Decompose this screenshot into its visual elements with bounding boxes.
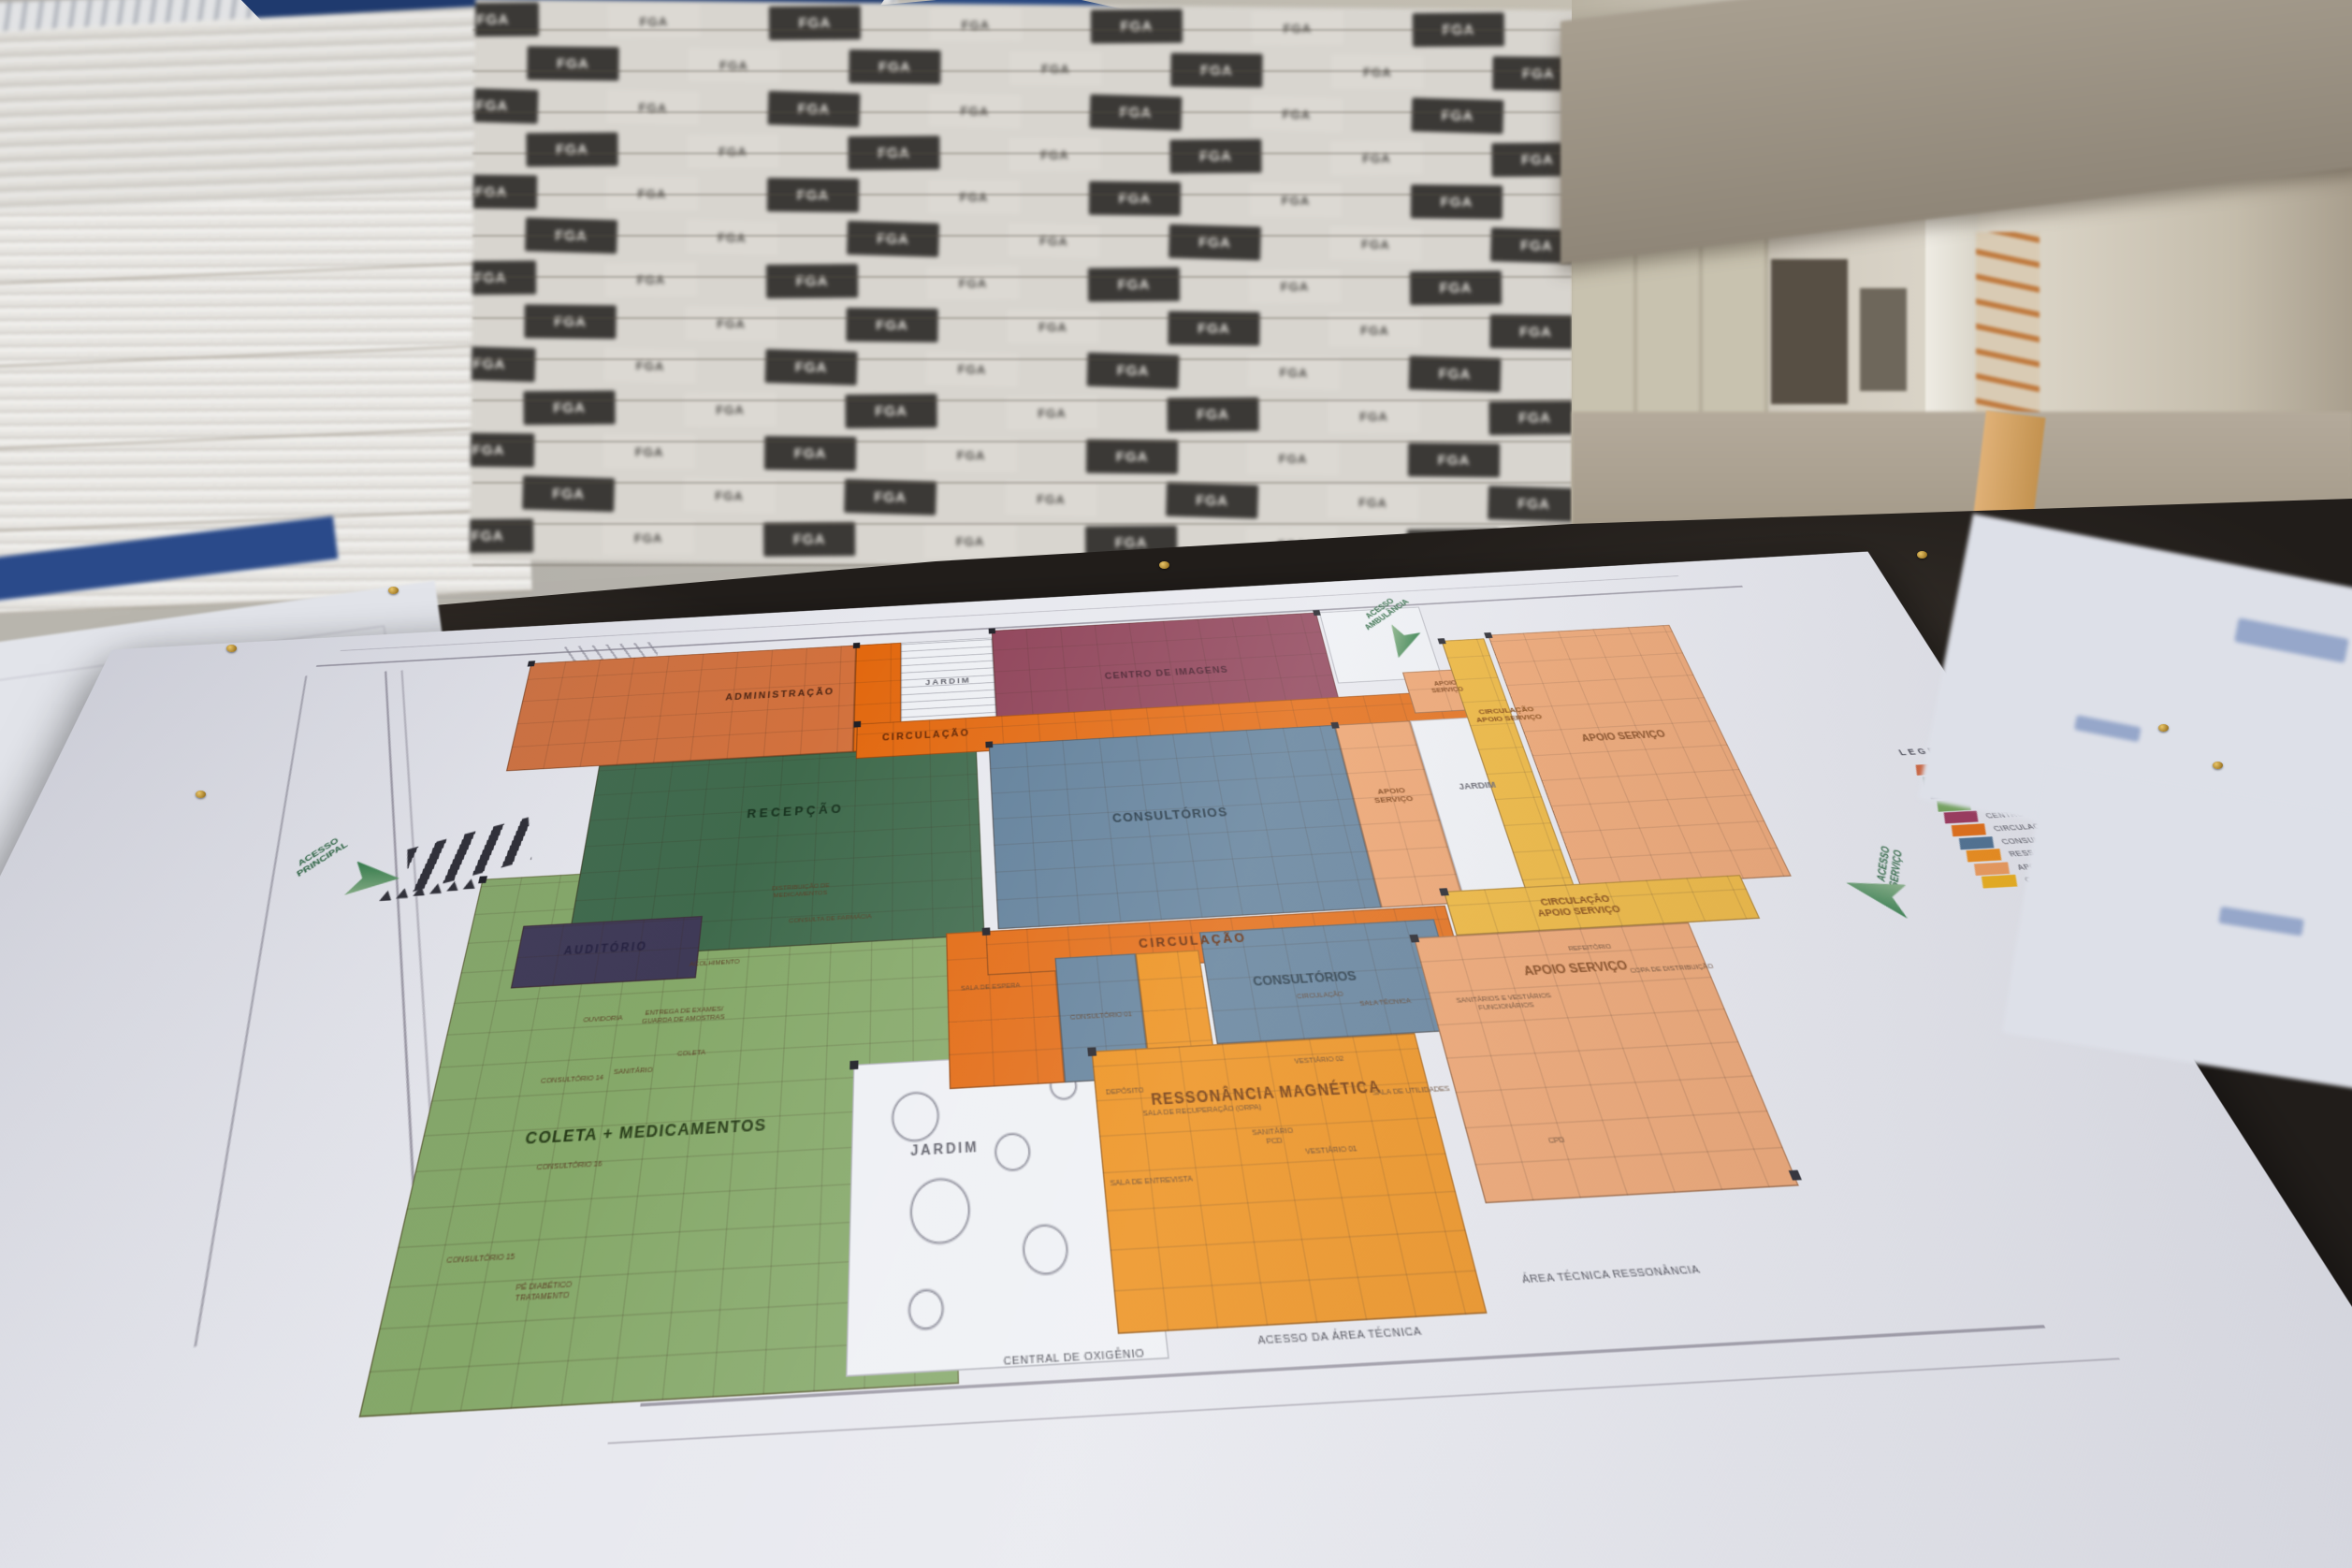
board-edge-label: FGA [1169, 139, 1261, 174]
board-edge-label: FGA [684, 392, 776, 427]
column-marker [528, 661, 536, 666]
region-administracao [506, 646, 856, 772]
board-edge-label: FGA [526, 132, 617, 167]
column-marker [853, 721, 861, 728]
board-edge-label: FGA [687, 134, 778, 168]
board-edge-label: FGA [1250, 96, 1343, 133]
acesso-principal-label: ACESSO PRINCIPAL [292, 834, 349, 879]
board-edge-label: FGA [1410, 270, 1502, 305]
acesso-servico-label: ACESSO SERVIÇO [1876, 844, 1906, 891]
board-edge-label: FGA [686, 219, 778, 255]
board-edge-label: FGA [1327, 484, 1419, 520]
board-edge-label: FGA [470, 3, 539, 37]
column-marker [1484, 632, 1492, 638]
column-marker [1087, 1047, 1096, 1056]
sketch-mark [2234, 617, 2349, 662]
sketch-mark [2218, 907, 2304, 936]
column-marker [982, 927, 991, 936]
gold-pin [2158, 724, 2169, 732]
board-edge-label: FGA [1248, 355, 1341, 391]
board-edge-label: FGA [1166, 483, 1258, 519]
board-edge-label: FGA [603, 520, 694, 555]
region-consultorios-1 [989, 725, 1382, 929]
board-edge-label: FGA [844, 479, 936, 515]
board-edge-label: FGA [1009, 138, 1100, 172]
board-edge-label: FGA [470, 88, 539, 124]
board-edge-label: FGA [769, 6, 861, 40]
board-edge-label: FGA [1328, 312, 1420, 347]
legend-swatch [1982, 875, 2017, 889]
board-edge-label: FGA [845, 394, 936, 428]
room-label: SANITÁRIO PCD [1252, 1127, 1296, 1148]
board-edge-label: FGA [608, 4, 700, 38]
column-marker [989, 628, 995, 633]
board-edge-label: FGA [930, 7, 1022, 42]
board-edge-label: FGA [470, 261, 536, 296]
zone-label: CIRCULAÇÃO APOIO SERVIÇO [1532, 893, 1622, 920]
board-edge-label: FGA [1087, 353, 1180, 389]
board-edge-label: FGA [1086, 440, 1178, 474]
pavement-triangle [446, 880, 460, 892]
board-edge-label: FGA [685, 306, 777, 341]
zone-label: JARDIM [1458, 779, 1498, 791]
gold-pin [226, 645, 237, 652]
board-edge-label: FGA [928, 180, 1020, 214]
board-edge-label: FGA [683, 477, 776, 514]
board-edge-label: FGA [1006, 396, 1097, 430]
board-edge-label: FGA [1008, 223, 1100, 259]
column-marker [1330, 722, 1339, 729]
site-label: ACESSO DA ÁREA TÉCNICA [1256, 1325, 1423, 1349]
board-edge-label: FGA [928, 93, 1021, 129]
board-edge-label: FGA [1488, 400, 1580, 435]
board-edge-label: FGA [604, 347, 697, 384]
board-edge-label: FGA [764, 436, 856, 471]
board-edge-label: FGA [1007, 310, 1098, 344]
gold-pin [2213, 762, 2223, 769]
board-edge-label: FGA [1408, 443, 1500, 477]
board-edge-label: FGA [470, 346, 536, 383]
board-edge-label: FGA [1331, 54, 1423, 89]
board-edge-label: FGA [849, 50, 940, 84]
zone-label: APOIO SERVIÇO [1371, 786, 1414, 806]
board-edge-label: FGA [606, 176, 698, 211]
gold-pin [1917, 551, 1927, 559]
board-edge-label: FGA [846, 308, 937, 342]
board-edge-label: FGA [925, 438, 1017, 472]
board-edge-label: FGA [1088, 268, 1180, 302]
board-edge-label: FGA [924, 524, 1016, 559]
legend-swatch [1944, 811, 1979, 824]
board-edge-label: FGA [1489, 314, 1581, 349]
board-edge-label: FGA [847, 221, 939, 257]
column-marker [1437, 638, 1445, 644]
legend-swatch [1967, 849, 2002, 862]
board-edge-label: FGA [1250, 182, 1342, 217]
board-edge-label: FGA [1411, 184, 1503, 219]
board-edge-label: FGA [763, 522, 855, 557]
gold-pin [1159, 561, 1169, 569]
board-edge-label: FGA [766, 264, 858, 298]
doorway-opening-2 [1860, 288, 1907, 391]
board-edge-label: FGA [848, 136, 939, 170]
board-edge-label: FGA [1328, 399, 1419, 433]
board-edge-label: FGA [1413, 12, 1504, 47]
board-edge-label: FGA [1168, 312, 1259, 346]
board-edge-label: FGA [605, 262, 697, 297]
board-edge-label: FGA [470, 519, 533, 554]
column-marker [853, 643, 860, 648]
board-edge-label: FGA [523, 390, 615, 425]
column-marker [849, 1061, 858, 1070]
board-edge-label: FGA [1252, 11, 1343, 46]
board-edge-label: FGA [926, 351, 1019, 387]
board-edge-label: FGA [1247, 441, 1339, 475]
board-edge-label: FGA [1249, 269, 1341, 304]
board-edge-label: FGA [606, 89, 699, 125]
pavement-triangle [379, 890, 394, 901]
drywall-stack-fga: FGAFGAFGAFGAFGAFGAFGAFGAFGAFGAFGAFGAFGAF… [470, 0, 1598, 572]
board-edge-label: FGA [765, 349, 858, 385]
board-edge-label: FGA [1091, 9, 1183, 44]
board-edge-label: FGA [470, 174, 537, 209]
board-edge-label: FGA [1089, 181, 1181, 216]
board-edge-label: FGA [767, 91, 860, 127]
sketch-mark [2074, 715, 2141, 742]
legend-swatch [1974, 862, 2010, 876]
board-edge-label: FGA [470, 432, 534, 467]
board-edge-label: FGA [1170, 53, 1262, 88]
room-label: COLETA [676, 1049, 705, 1059]
board-edge-label: FGA [1330, 140, 1422, 175]
column-marker [1409, 935, 1419, 943]
board-edge-label: FGA [525, 217, 617, 254]
construction-site-photo: FGAFGAFGAFGAFGAFGAFGAFGAFGAFGAFGAFGAFGAF… [0, 0, 2352, 1568]
legend-swatch [1959, 836, 1994, 849]
gold-pin [196, 791, 206, 798]
legend-swatch [1952, 823, 1986, 836]
board-edge-label: FGA [1089, 94, 1182, 131]
board-edge-label: FGA [1488, 486, 1580, 522]
column-marker [985, 741, 993, 748]
gold-pin [388, 587, 399, 594]
room-label: PÉ DIABÉTICO TRATAMENTO [513, 1281, 572, 1305]
board-edge-label: FGA [527, 46, 618, 80]
zone-label: APOIO SERVIÇO [1429, 680, 1464, 695]
board-edge-label: FGA [603, 434, 695, 469]
board-edge-label: FGA [1009, 51, 1101, 86]
scaffold [1976, 232, 2040, 428]
board-edge-label: FGA [1169, 225, 1261, 261]
board-edge-label: FGA [767, 178, 859, 212]
board-edge-label: FGA [1005, 481, 1097, 517]
column-marker [1313, 610, 1321, 616]
board-edge-label: FGA [927, 266, 1019, 300]
board-edge-label: FGA [522, 475, 615, 512]
board-edge-label: FGA [524, 304, 616, 339]
site-label: ÁREA TÉCNICA RESSONÂNCIA [1520, 1263, 1702, 1287]
site-boundary-left [194, 675, 307, 1347]
board-edge-label: FGA [688, 48, 779, 82]
board-edge-label: FGA [1167, 398, 1258, 432]
board-edge-label: FGA [1409, 356, 1502, 392]
room-label: CPD [1547, 1136, 1566, 1146]
board-edge-label: FGA [1329, 225, 1422, 262]
pavement-triangle [463, 878, 477, 890]
doorway-opening [1771, 259, 1848, 404]
board-edge-label: FGA [1411, 97, 1503, 134]
